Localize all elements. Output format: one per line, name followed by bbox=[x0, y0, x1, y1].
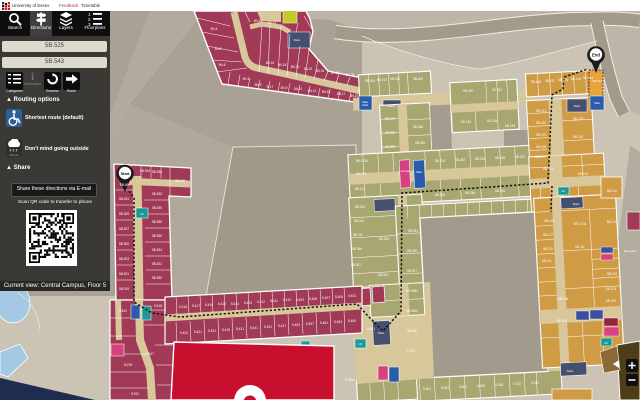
svg-text:Lift: Lift bbox=[140, 212, 144, 216]
svg-text:Start: Start bbox=[121, 171, 131, 176]
svg-text:5B.147: 5B.147 bbox=[545, 79, 555, 83]
svg-text:5B.313: 5B.313 bbox=[354, 219, 364, 223]
svg-text:5B.119: 5B.119 bbox=[544, 219, 554, 223]
svg-text:5B.216: 5B.216 bbox=[475, 157, 485, 161]
svg-text:5B.329: 5B.329 bbox=[407, 249, 417, 253]
svg-text:5N.19: 5N.19 bbox=[350, 94, 359, 98]
svg-text:5.420: 5.420 bbox=[180, 331, 188, 335]
svg-text:5N.3: 5N.3 bbox=[243, 77, 250, 81]
svg-text:5.518: 5.518 bbox=[154, 304, 162, 308]
svg-text:Stairs: Stairs bbox=[567, 369, 574, 373]
svg-text:5S.124: 5S.124 bbox=[578, 172, 588, 176]
svg-text:5.419: 5.419 bbox=[222, 328, 230, 332]
svg-text:5.308: 5.308 bbox=[495, 383, 503, 387]
svg-text:5B.495: 5B.495 bbox=[120, 183, 130, 187]
svg-text:5N.8: 5N.8 bbox=[219, 63, 226, 67]
svg-text:5B.246: 5B.246 bbox=[495, 189, 505, 193]
svg-text:5N.6: 5N.6 bbox=[215, 47, 222, 51]
svg-text:5B.102: 5B.102 bbox=[606, 299, 616, 303]
svg-text:5B.36x: 5B.36x bbox=[352, 247, 362, 251]
svg-text:Stairs: Stairs bbox=[378, 331, 385, 335]
svg-text:5B.100: 5B.100 bbox=[557, 319, 567, 323]
svg-text:5.422: 5.422 bbox=[208, 329, 216, 333]
svg-text:5B.317: 5B.317 bbox=[355, 187, 365, 191]
svg-text:5.3004: 5.3004 bbox=[345, 378, 355, 382]
svg-text:5B.545: 5B.545 bbox=[175, 179, 185, 183]
svg-text:5N.9: 5N.9 bbox=[281, 86, 288, 90]
svg-text:5B.311: 5B.311 bbox=[353, 233, 363, 237]
svg-text:5B.519: 5B.519 bbox=[119, 287, 129, 291]
svg-text:5B.104: 5B.104 bbox=[607, 272, 617, 276]
svg-text:5.078: 5.078 bbox=[124, 363, 132, 367]
svg-text:5B.520: 5B.520 bbox=[152, 276, 162, 280]
svg-text:5.451: 5.451 bbox=[264, 325, 272, 329]
svg-text:5N.15: 5N.15 bbox=[322, 90, 331, 94]
svg-text:5B.305: 5B.305 bbox=[379, 237, 389, 241]
svg-text:Female: Female bbox=[401, 169, 410, 173]
svg-text:5.415: 5.415 bbox=[218, 302, 226, 306]
svg-text:5.302: 5.302 bbox=[441, 386, 449, 390]
svg-text:5N.16: 5N.16 bbox=[266, 61, 275, 65]
svg-text:5B.328: 5B.328 bbox=[385, 145, 395, 149]
svg-text:5B.123: 5B.123 bbox=[543, 167, 553, 171]
svg-text:5.310: 5.310 bbox=[513, 382, 521, 386]
svg-text:5B.431: 5B.431 bbox=[119, 197, 129, 201]
svg-text:Male: Male bbox=[594, 101, 600, 105]
svg-text:5B.202: 5B.202 bbox=[413, 77, 423, 81]
svg-text:5.414: 5.414 bbox=[231, 302, 239, 306]
svg-text:5B.327: 5B.327 bbox=[407, 269, 417, 273]
svg-text:5.512: 5.512 bbox=[119, 309, 127, 313]
svg-text:5B.248: 5B.248 bbox=[465, 191, 475, 195]
svg-text:5.312: 5.312 bbox=[531, 381, 539, 385]
svg-text:5B.128: 5B.128 bbox=[573, 135, 583, 139]
svg-text:5B.534: 5B.534 bbox=[140, 169, 150, 173]
svg-text:5B.117: 5B.117 bbox=[543, 233, 553, 237]
svg-text:5.421: 5.421 bbox=[194, 330, 202, 334]
svg-text:5N.7: 5N.7 bbox=[267, 85, 274, 89]
svg-text:5B.103: 5B.103 bbox=[606, 287, 616, 291]
svg-text:5.413: 5.413 bbox=[244, 301, 252, 305]
svg-text:5B.529: 5B.529 bbox=[119, 212, 129, 216]
svg-text:5B.528: 5B.528 bbox=[152, 220, 162, 224]
svg-text:5.410: 5.410 bbox=[283, 298, 291, 302]
svg-text:5B.202: 5B.202 bbox=[515, 155, 525, 159]
svg-text:5B.521: 5B.521 bbox=[119, 272, 129, 276]
svg-text:5B.526: 5B.526 bbox=[152, 234, 162, 238]
svg-text:5B.171A: 5B.171A bbox=[574, 222, 587, 226]
svg-text:5B.303: 5B.303 bbox=[378, 273, 388, 277]
svg-text:5B.319: 5B.319 bbox=[356, 172, 366, 176]
svg-text:Stairs: Stairs bbox=[294, 38, 301, 42]
svg-text:5B.252: 5B.252 bbox=[455, 158, 465, 162]
svg-text:5.417: 5.417 bbox=[192, 304, 200, 308]
svg-text:5N.10: 5N.10 bbox=[254, 19, 263, 23]
svg-text:5B.525: 5B.525 bbox=[119, 242, 129, 246]
svg-text:5B.315: 5B.315 bbox=[355, 205, 365, 209]
svg-text:5B.130: 5B.130 bbox=[536, 121, 546, 125]
svg-text:5B.167: 5B.167 bbox=[385, 117, 395, 121]
svg-text:5.465: 5.465 bbox=[348, 319, 356, 323]
svg-text:5B.149: 5B.149 bbox=[505, 124, 515, 128]
svg-text:5.412: 5.412 bbox=[257, 300, 265, 304]
svg-text:5.702: 5.702 bbox=[407, 349, 415, 353]
svg-text:5.416: 5.416 bbox=[205, 303, 213, 307]
svg-text:5.804: 5.804 bbox=[423, 387, 431, 391]
svg-text:5N.20: 5N.20 bbox=[291, 65, 300, 69]
svg-text:5.463: 5.463 bbox=[334, 320, 342, 324]
svg-text:5B.194: 5B.194 bbox=[390, 77, 400, 81]
svg-text:Indoors: Indoors bbox=[9, 153, 20, 157]
svg-text:5N.5: 5N.5 bbox=[255, 83, 262, 87]
svg-text:5.306: 5.306 bbox=[477, 384, 485, 388]
svg-text:5B.1xx: 5B.1xx bbox=[607, 189, 617, 193]
svg-text:5B.108: 5B.108 bbox=[558, 297, 568, 301]
svg-text:5B.143: 5B.143 bbox=[592, 79, 602, 83]
svg-text:5.461: 5.461 bbox=[320, 321, 328, 325]
svg-text:5B.17A: 5B.17A bbox=[607, 220, 618, 224]
svg-text:5B.338: 5B.338 bbox=[385, 131, 395, 135]
svg-text:5B.115: 5B.115 bbox=[543, 247, 553, 251]
svg-text:5N.4: 5N.4 bbox=[211, 27, 218, 31]
svg-text:5B.3084: 5B.3084 bbox=[406, 289, 418, 293]
svg-text:5N.12: 5N.12 bbox=[268, 21, 277, 25]
svg-text:5B.111: 5B.111 bbox=[542, 259, 552, 263]
svg-text:5B.524: 5B.524 bbox=[152, 248, 162, 252]
svg-text:5B.336: 5B.336 bbox=[413, 125, 423, 129]
svg-text:5N.24: 5N.24 bbox=[316, 69, 325, 73]
svg-text:5B.129: 5B.129 bbox=[536, 133, 546, 137]
svg-text:5B.530: 5B.530 bbox=[152, 206, 162, 210]
svg-text:5B.192: 5B.192 bbox=[377, 78, 387, 82]
svg-text:5.441: 5.441 bbox=[250, 326, 258, 330]
svg-text:5B.3064: 5B.3064 bbox=[406, 309, 418, 313]
svg-text:50.161: 50.161 bbox=[492, 88, 502, 92]
svg-text:Stairs: Stairs bbox=[573, 202, 580, 206]
svg-text:Lift: Lift bbox=[561, 189, 565, 193]
svg-text:5.403: 5.403 bbox=[348, 294, 356, 298]
svg-text:Lift: Lift bbox=[358, 342, 362, 346]
svg-text:End: End bbox=[592, 52, 600, 57]
svg-text:5B.307: 5B.307 bbox=[351, 263, 361, 267]
svg-text:5B.214: 5B.214 bbox=[435, 159, 445, 163]
svg-text:5.411: 5.411 bbox=[270, 299, 278, 303]
svg-text:5B.306: 5B.306 bbox=[407, 329, 417, 333]
svg-text:Lift: Lift bbox=[604, 341, 608, 345]
svg-text:Gallery: Gallery bbox=[387, 104, 396, 108]
svg-text:5B.319A: 5B.319A bbox=[356, 159, 369, 163]
svg-text:5.453: 5.453 bbox=[292, 323, 300, 327]
svg-text:5N.28: 5N.28 bbox=[346, 73, 355, 77]
svg-text:5B.150: 5B.150 bbox=[463, 89, 473, 93]
svg-text:5B.128: 5B.128 bbox=[536, 145, 546, 149]
svg-text:5B.127: 5B.127 bbox=[535, 155, 545, 159]
svg-text:5N.22: 5N.22 bbox=[304, 67, 313, 71]
svg-text:Toilet: Toilet bbox=[362, 103, 368, 107]
svg-text:5.457: 5.457 bbox=[306, 322, 314, 326]
svg-text:5N.17: 5N.17 bbox=[337, 92, 346, 96]
svg-text:5N.13: 5N.13 bbox=[308, 89, 317, 93]
svg-text:Stairs: Stairs bbox=[574, 104, 581, 108]
svg-text:5S.154: 5S.154 bbox=[487, 119, 497, 123]
svg-text:5B.129: 5B.129 bbox=[573, 117, 583, 121]
svg-text:5B.326: 5B.326 bbox=[415, 141, 425, 145]
svg-text:5B.331: 5B.331 bbox=[408, 229, 418, 233]
svg-text:5.304: 5.304 bbox=[459, 385, 467, 389]
svg-text:Male: Male bbox=[416, 170, 422, 174]
svg-text:5B.527: 5B.527 bbox=[119, 227, 129, 231]
svg-text:5B.146: 5B.146 bbox=[558, 78, 568, 82]
svg-text:5.418: 5.418 bbox=[179, 305, 187, 309]
svg-text:5B.533: 5B.533 bbox=[152, 192, 162, 196]
svg-text:5B.523: 5B.523 bbox=[119, 257, 129, 261]
svg-text:5B.522: 5B.522 bbox=[152, 262, 162, 266]
svg-text:5N.11: 5N.11 bbox=[294, 87, 302, 91]
svg-text:5B.218: 5B.218 bbox=[495, 156, 505, 160]
svg-text:5B.131: 5B.131 bbox=[536, 109, 546, 113]
svg-text:5.431: 5.431 bbox=[236, 327, 244, 331]
svg-text:5B.250: 5B.250 bbox=[435, 193, 445, 197]
svg-text:5B.536: 5B.536 bbox=[152, 170, 162, 174]
svg-text:5.401: 5.401 bbox=[367, 327, 375, 331]
svg-text:5B.148: 5B.148 bbox=[531, 80, 541, 84]
svg-text:5.409: 5.409 bbox=[296, 298, 304, 302]
svg-text:5S.153: 5S.153 bbox=[461, 120, 471, 124]
svg-text:5B.190: 5B.190 bbox=[365, 79, 375, 83]
svg-text:5.408: 5.408 bbox=[309, 297, 317, 301]
svg-text:5.406: 5.406 bbox=[335, 295, 343, 299]
svg-text:5N.26: 5N.26 bbox=[331, 71, 340, 75]
svg-text:5.407: 5.407 bbox=[322, 296, 330, 300]
svg-text:Everyday: Everyday bbox=[624, 249, 637, 253]
svg-text:5.517: 5.517 bbox=[146, 352, 154, 356]
svg-text:5N.18: 5N.18 bbox=[278, 63, 287, 67]
svg-text:5B.145: 5B.145 bbox=[571, 77, 581, 81]
svg-text:5.911: 5.911 bbox=[131, 392, 139, 396]
svg-text:5B.111: 5B.111 bbox=[575, 245, 585, 249]
svg-text:5.447: 5.447 bbox=[278, 324, 286, 328]
